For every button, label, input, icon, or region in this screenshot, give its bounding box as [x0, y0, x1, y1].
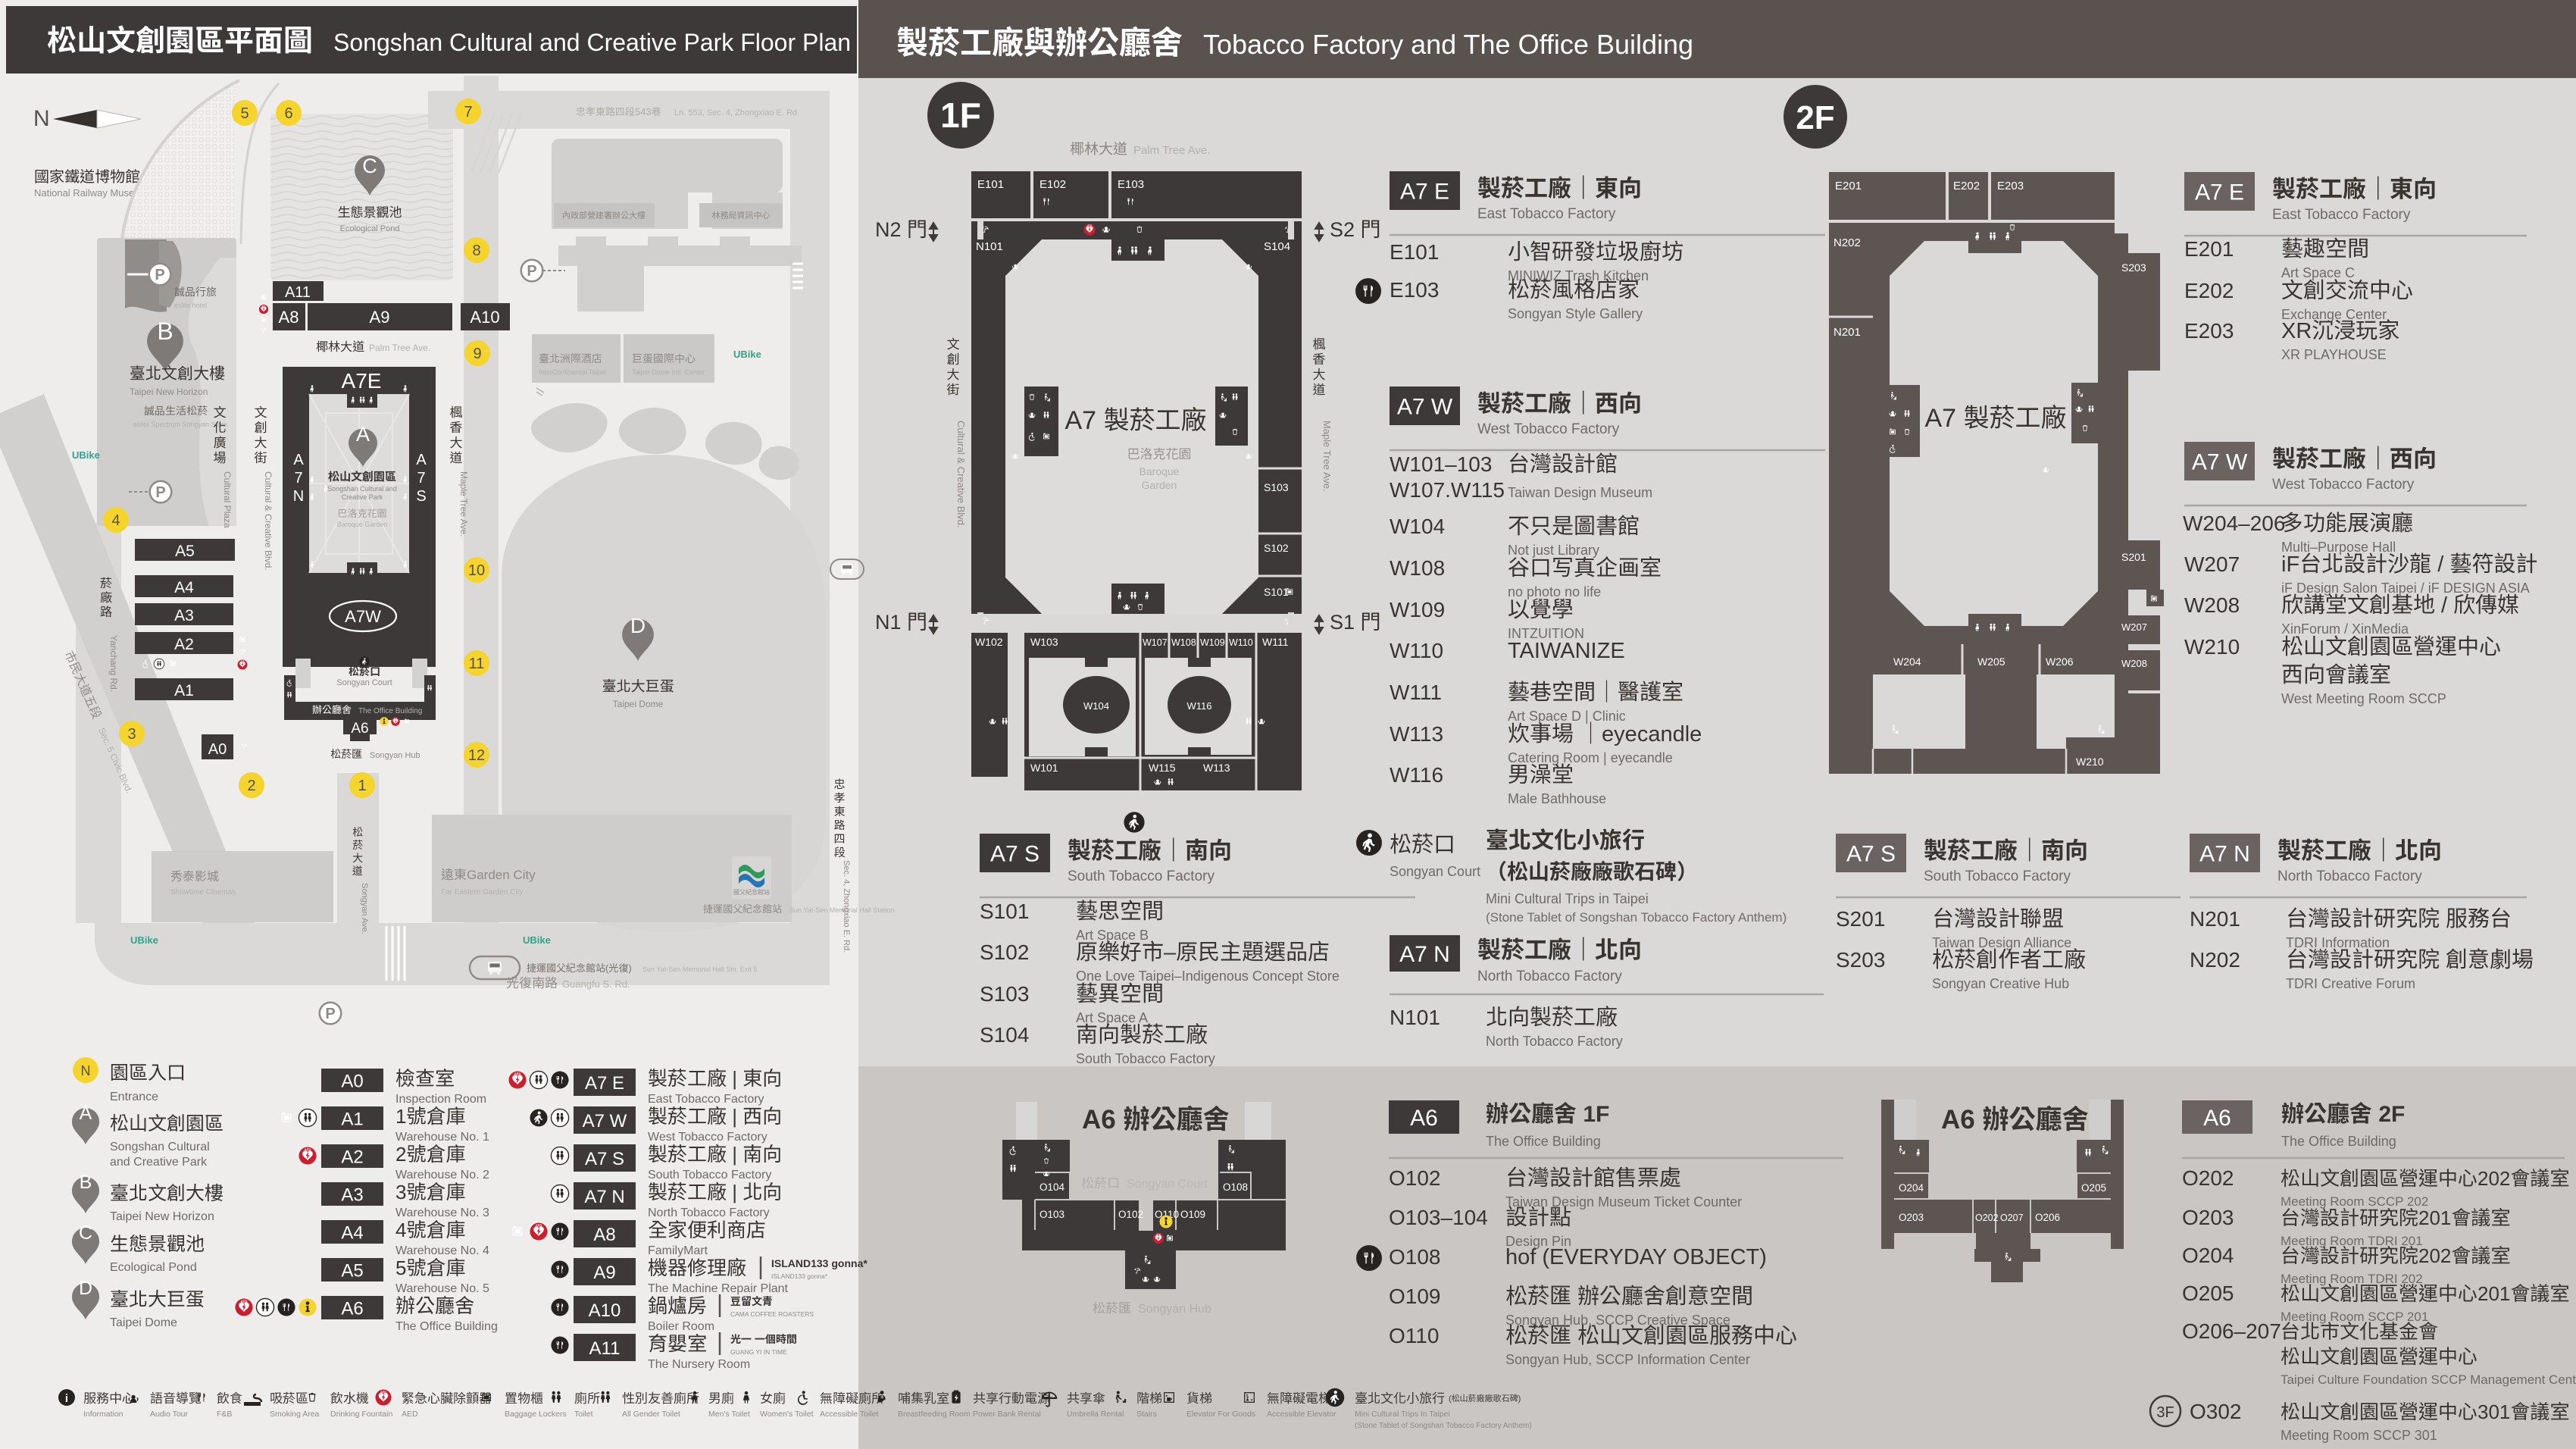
svg-text:E103: E103 [1390, 274, 1439, 304]
svg-text:2: 2 [247, 773, 255, 795]
svg-text:Ecological Pond: Ecological Pond [110, 1257, 197, 1275]
svg-text:Taipei New Horizon: Taipei New Horizon [110, 1206, 214, 1224]
svg-text:(松山菸廠廠歌石碑): (松山菸廠廠歌石碑) [1449, 1392, 1521, 1404]
svg-text:場: 場 [214, 447, 227, 466]
svg-text:O206: O206 [2035, 1209, 2060, 1224]
svg-text:A3: A3 [174, 603, 194, 626]
svg-text:3F: 3F [2156, 1400, 2174, 1422]
svg-text:Information: Information [83, 1408, 123, 1419]
svg-text:UBike: UBike [523, 932, 551, 947]
svg-text:Songyan Hub, SCCP Information: Songyan Hub, SCCP Information Center [1505, 1349, 1750, 1369]
svg-text:松菸匯: 松菸匯 [330, 746, 362, 762]
svg-text:炊事場 ｜eyecandle: 炊事場 ｜eyecandle [1508, 716, 1702, 748]
svg-text:道: 道 [352, 863, 363, 878]
svg-text:Songyan Court: Songyan Court [1127, 1173, 1208, 1191]
svg-text:Smoking Area: Smoking Area [270, 1408, 320, 1419]
svg-text:臺北大巨蛋: 臺北大巨蛋 [110, 1285, 205, 1312]
svg-text:椰林大道: 椰林大道 [1070, 138, 1127, 158]
svg-text:女廁: 女廁 [760, 1388, 786, 1407]
svg-text:10: 10 [468, 558, 485, 580]
svg-text:UBike: UBike [72, 447, 100, 462]
svg-text:W210: W210 [2184, 631, 2240, 661]
svg-text:不只是圖書館: 不只是圖書館 [1508, 509, 1640, 540]
svg-text:O204: O204 [2182, 1239, 2234, 1269]
svg-text:O104: O104 [1039, 1178, 1065, 1194]
svg-text:i: i [65, 1390, 68, 1406]
svg-text:製菸工廠｜北向: 製菸工廠｜北向 [1477, 931, 1642, 965]
svg-text:男澡堂: 男澡堂 [1508, 757, 1574, 789]
svg-text:生態景觀池: 生態景觀池 [338, 202, 402, 221]
svg-text:Taipei Culture Foundation SCCP: Taipei Culture Foundation SCCP Managemen… [2281, 1369, 2576, 1388]
svg-text:Breastfeeding Room: Breastfeeding Room [898, 1408, 971, 1419]
svg-text:台灣設計研究院 創意劇場: 台灣設計研究院 創意劇場 [2286, 942, 2534, 974]
svg-text:A: A [80, 1098, 92, 1125]
svg-text:松菸創作者工廠: 松菸創作者工廠 [1932, 942, 2086, 974]
svg-text:吸菸區: 吸菸區 [270, 1388, 308, 1407]
svg-text:Baroque Garden: Baroque Garden [337, 519, 388, 529]
svg-text:Baroque: Baroque [1140, 464, 1180, 479]
svg-text:台灣設計研究院201會議室: 台灣設計研究院201會議室 [2281, 1203, 2510, 1231]
svg-text:檢查室: 檢查室 [395, 1063, 455, 1091]
svg-text:S: S [416, 484, 426, 505]
svg-text:藝趣空間: 藝趣空間 [2281, 231, 2369, 263]
svg-text:iF台北設計沙龍 / 藝符設計: iF台北設計沙龍 / 藝符設計 [2281, 546, 2537, 578]
svg-text:O202: O202 [2182, 1162, 2234, 1192]
svg-text:段: 段 [833, 844, 845, 860]
svg-text:F&B: F&B [217, 1408, 232, 1419]
svg-text:A8: A8 [593, 1219, 615, 1246]
svg-text:辦公廳舍: 辦公廳舍 [395, 1291, 474, 1319]
svg-text:S101: S101 [1264, 584, 1289, 599]
svg-text:國家鐵道博物館: 國家鐵道博物館 [34, 164, 140, 186]
svg-text:台灣設計研究院202會議室: 台灣設計研究院202會議室 [2281, 1241, 2510, 1269]
svg-text:豆留文青: 豆留文青 [730, 1294, 773, 1309]
svg-text:W113: W113 [1203, 760, 1230, 775]
svg-text:A9: A9 [593, 1257, 615, 1284]
svg-text:A11: A11 [285, 280, 311, 302]
svg-text:5: 5 [240, 101, 249, 123]
svg-text:林務局資訊中心: 林務局資訊中心 [711, 209, 771, 221]
svg-text:小智研發垃圾廚坊: 小智研發垃圾廚坊 [1508, 234, 1683, 266]
svg-text:S2 門: S2 門 [1330, 213, 1381, 243]
svg-text:A2: A2 [174, 632, 194, 655]
svg-text:Sun Yat-Sen Memorial Hall Stn.: Sun Yat-Sen Memorial Hall Stn. Exit 5 [642, 964, 757, 974]
svg-text:鍋爐房: 鍋爐房 [648, 1291, 707, 1319]
svg-text:A7 S: A7 S [585, 1144, 624, 1170]
svg-text:B: B [157, 312, 173, 347]
svg-text:無障礙電梯: 無障礙電梯 [1267, 1388, 1331, 1407]
svg-text:松菸口: 松菸口 [1390, 827, 1455, 859]
svg-text:Ln. 553, Sec. 4, Zhongxiao E.: Ln. 553, Sec. 4, Zhongxiao E. Rd. [674, 106, 799, 118]
svg-text:Accessible Elevator: Accessible Elevator [1267, 1408, 1336, 1419]
svg-text:原樂好市–原民主題選品店: 原樂好市–原民主題選品店 [1076, 934, 1330, 966]
svg-text:W208: W208 [2121, 656, 2147, 670]
svg-text:O203: O203 [1899, 1209, 1924, 1224]
svg-text:欣講堂文創基地 / 欣傳媒: 欣講堂文創基地 / 欣傳媒 [2281, 587, 2519, 619]
svg-text:松山文創園區: 松山文創園區 [328, 468, 396, 484]
svg-text:廁所: 廁所 [574, 1388, 600, 1407]
svg-text:A9: A9 [370, 304, 390, 328]
svg-text:Cultural & Creative Blvd.: Cultural & Creative Blvd. [262, 471, 275, 571]
svg-text:Taipei Dome: Taipei Dome [613, 697, 664, 710]
svg-text:A10: A10 [589, 1295, 621, 1322]
svg-text:O205: O205 [2182, 1277, 2234, 1307]
svg-text:置物櫃: 置物櫃 [505, 1388, 543, 1407]
svg-text:北向製菸工廠: 北向製菸工廠 [1486, 1000, 1618, 1031]
svg-text:西向會議室: 西向會議室 [2281, 657, 2391, 689]
svg-text:A7 S: A7 S [990, 835, 1039, 868]
svg-text:辦公廳舍 2F: 辦公廳舍 2F [2281, 1095, 2405, 1128]
svg-text:O108: O108 [1389, 1241, 1441, 1271]
svg-text:台灣設計研究院 服務台: 台灣設計研究院 服務台 [2286, 901, 2512, 933]
svg-text:W111: W111 [1262, 634, 1289, 649]
svg-text:Songyan Style Gallery: Songyan Style Gallery [1508, 303, 1643, 323]
svg-text:飲水機: 飲水機 [330, 1388, 369, 1407]
svg-text:North Tobacco Factory: North Tobacco Factory [1486, 1031, 1623, 1050]
svg-text:The Office Building: The Office Building [1486, 1131, 1601, 1150]
svg-text:A4: A4 [341, 1218, 363, 1244]
svg-text:Mini Cultural Trips In Taipei: Mini Cultural Trips In Taipei [1355, 1408, 1450, 1419]
svg-text:Songshan Cultural and Creative: Songshan Cultural and Creative Park Floo… [333, 23, 851, 58]
svg-text:飲食: 飲食 [217, 1388, 242, 1407]
svg-text:The Office Building: The Office Building [395, 1316, 498, 1334]
svg-text:語音導覽: 語音導覽 [150, 1388, 202, 1407]
svg-text:East Tobacco Factory: East Tobacco Factory [1477, 202, 1616, 223]
svg-text:椰林大道: 椰林大道 [316, 336, 364, 355]
svg-text:Cultural & Creative Blvd.: Cultural & Creative Blvd. [955, 421, 969, 528]
svg-text:Palm Tree Ave.: Palm Tree Ave. [369, 341, 430, 354]
svg-text:(Stone Tablet of Songshan Toba: (Stone Tablet of Songshan Tobacco Factor… [1486, 906, 1787, 925]
svg-text:誠品生活松菸: 誠品生活松菸 [144, 403, 208, 418]
svg-text:hof (EVERYDAY OBJECT): hof (EVERYDAY OBJECT) [1505, 1239, 1767, 1271]
svg-text:臺北文創大樓: 臺北文創大樓 [110, 1178, 224, 1206]
svg-text:製菸工廠｜南向: 製菸工廠｜南向 [1924, 831, 2088, 865]
svg-text:S103: S103 [1264, 480, 1289, 495]
svg-text:國父紀念館站: 國父紀念館站 [733, 888, 771, 897]
svg-text:E202: E202 [1953, 177, 1980, 193]
svg-text:O302: O302 [2190, 1395, 2242, 1426]
svg-text:O204: O204 [1899, 1179, 1924, 1194]
svg-text:誠品行旅: 誠品行旅 [174, 284, 217, 299]
svg-text:共享行動電源: 共享行動電源 [973, 1388, 1050, 1407]
svg-text:Garden: Garden [1142, 477, 1177, 493]
svg-text:臺北洲際酒店: 臺北洲際酒店 [539, 351, 602, 366]
svg-text:E203: E203 [2184, 315, 2234, 345]
svg-text:共享傘: 共享傘 [1067, 1388, 1105, 1407]
svg-text:松菸匯: 松菸匯 [1093, 1297, 1131, 1316]
svg-text:Elevator For Goods: Elevator For Goods [1186, 1408, 1255, 1419]
svg-text:男廁: 男廁 [708, 1388, 734, 1407]
svg-text:W113: W113 [1390, 718, 1443, 748]
svg-text:A0: A0 [341, 1066, 363, 1093]
svg-text:巴洛克花園: 巴洛克花園 [1127, 443, 1192, 462]
svg-text:育嬰室: 育嬰室 [648, 1329, 707, 1357]
svg-text:Palm Tree Ave.: Palm Tree Ave. [1133, 142, 1210, 158]
svg-text:松山文創園區平面圖: 松山文創園區平面圖 [47, 17, 313, 60]
svg-text:台灣設計館: 台灣設計館 [1508, 446, 1618, 478]
svg-text:松山文創園區營運中心202會議室: 松山文創園區營運中心202會議室 [2281, 1163, 2569, 1191]
svg-text:W102: W102 [975, 634, 1003, 649]
svg-text:光一 一個時間: 光一 一個時間 [730, 1332, 797, 1347]
svg-text:無障礙廁所: 無障礙廁所 [820, 1388, 884, 1407]
svg-text:A7 W: A7 W [2192, 443, 2248, 477]
svg-text:Taipei Dome Intl. Center: Taipei Dome Intl. Center [632, 367, 705, 377]
svg-text:Drinking Fountain: Drinking Fountain [330, 1408, 392, 1419]
svg-text:臺北大巨蛋: 臺北大巨蛋 [602, 675, 674, 696]
svg-text:Songyan Hub: Songyan Hub [1138, 1298, 1211, 1316]
svg-text:O108: O108 [1223, 1178, 1248, 1194]
svg-text:East Tobacco Factory: East Tobacco Factory [2272, 203, 2411, 224]
svg-text:Entrance: Entrance [110, 1086, 158, 1104]
svg-text:Creative Park: Creative Park [342, 492, 383, 502]
svg-text:O102: O102 [1389, 1162, 1441, 1192]
svg-text:製菸工廠 | 南向: 製菸工廠 | 南向 [648, 1139, 782, 1167]
svg-text:N: N [33, 99, 50, 133]
svg-text:製菸工廠 | 北向: 製菸工廠 | 北向 [648, 1177, 782, 1205]
svg-text:藝思空間: 藝思空間 [1076, 893, 1164, 925]
svg-text:eslite hotel: eslite hotel [174, 300, 207, 310]
svg-text:W104: W104 [1083, 698, 1109, 712]
svg-text:A6: A6 [1410, 1099, 1438, 1132]
svg-text:1號倉庫: 1號倉庫 [395, 1101, 465, 1129]
svg-text:West Tobacco Factory: West Tobacco Factory [1477, 418, 1620, 438]
svg-text:Umbrella Rental: Umbrella Rental [1067, 1408, 1124, 1419]
svg-text:臺北文創大樓: 臺北文創大樓 [130, 361, 225, 384]
svg-text:臺北文化小旅行: 臺北文化小旅行 [1355, 1388, 1445, 1407]
svg-text:Audio Tour: Audio Tour [150, 1408, 189, 1419]
svg-text:A7 N: A7 N [584, 1181, 624, 1208]
svg-text:街: 街 [255, 447, 267, 466]
svg-text:Songyan Creative Hub: Songyan Creative Hub [1932, 973, 2069, 993]
svg-text:A0: A0 [208, 737, 227, 759]
svg-text:S1 門: S1 門 [1330, 606, 1381, 635]
svg-text:North Tobacco Factory: North Tobacco Factory [1477, 965, 1622, 985]
svg-text:11: 11 [469, 651, 485, 673]
svg-text:3號倉庫: 3號倉庫 [395, 1177, 465, 1205]
svg-text:W207: W207 [2121, 619, 2147, 634]
svg-text:A11: A11 [589, 1333, 621, 1360]
svg-text:Cultural Plaza: Cultural Plaza [221, 471, 234, 528]
svg-text:O102: O102 [1118, 1206, 1143, 1221]
svg-text:Stairs: Stairs [1136, 1408, 1157, 1419]
svg-text:E201: E201 [1835, 177, 1862, 193]
svg-text:N101: N101 [976, 238, 1003, 254]
svg-text:A7 N: A7 N [1399, 935, 1450, 969]
svg-text:台灣設計館售票處: 台灣設計館售票處 [1505, 1160, 1681, 1192]
svg-text:製菸工廠｜南向: 製菸工廠｜南向 [1068, 831, 1232, 865]
svg-text:W107.W115: W107.W115 [1390, 474, 1505, 504]
svg-text:S201: S201 [2121, 549, 2146, 565]
svg-text:E203: E203 [1997, 177, 2024, 193]
svg-text:W205: W205 [1977, 654, 2005, 669]
svg-text:貨梯: 貨梯 [1186, 1388, 1212, 1407]
svg-text:N: N [81, 1060, 91, 1080]
svg-text:O103–104: O103–104 [1389, 1201, 1488, 1231]
svg-text:製菸工廠 | 西向: 製菸工廠 | 西向 [648, 1101, 782, 1129]
svg-text:O207: O207 [2000, 1210, 2024, 1224]
svg-text:A7 E: A7 E [2195, 174, 2244, 207]
svg-text:AED: AED [402, 1408, 418, 1419]
svg-text:忠孝東路四段543巷: 忠孝東路四段543巷 [576, 104, 661, 118]
svg-text:N101: N101 [1390, 1001, 1440, 1031]
svg-text:W107: W107 [1143, 634, 1168, 649]
svg-text:1: 1 [358, 773, 366, 795]
svg-text:2F: 2F [1796, 90, 1834, 139]
svg-text:以覺學: 以覺學 [1508, 592, 1574, 624]
svg-text:E101: E101 [1390, 236, 1439, 266]
svg-text:O203: O203 [2182, 1201, 2234, 1231]
svg-text:A8: A8 [279, 304, 299, 328]
svg-text:All Gender Toilet: All Gender Toilet [622, 1408, 680, 1419]
svg-text:松山文創園區營運中心201會議室: 松山文創園區營運中心201會議室 [2281, 1278, 2569, 1307]
svg-text:藝異空間: 藝異空間 [1076, 976, 1164, 1008]
svg-text:Ecological Pond: Ecological Pond [340, 222, 400, 234]
svg-text:TAIWANIZE: TAIWANIZE [1508, 633, 1625, 665]
svg-text:服務中心: 服務中心 [83, 1388, 135, 1407]
svg-text:W116: W116 [1390, 759, 1443, 789]
svg-text:W115: W115 [1149, 760, 1176, 775]
svg-text:W108: W108 [1171, 634, 1196, 649]
svg-text:W109: W109 [1200, 634, 1225, 649]
svg-text:A7 S: A7 S [1846, 835, 1896, 868]
svg-text:3: 3 [127, 721, 136, 743]
svg-text:UBike: UBike [733, 346, 761, 361]
svg-text:Songyan Hub: Songyan Hub [370, 749, 420, 761]
svg-text:South Tobacco Factory: South Tobacco Factory [1924, 865, 2071, 885]
svg-text:南向製菸工廠: 南向製菸工廠 [1076, 1017, 1208, 1049]
svg-text:9: 9 [473, 341, 481, 363]
svg-text:W108: W108 [1390, 552, 1445, 582]
svg-text:松山文創園區營運中心: 松山文創園區營運中心 [2281, 1341, 2478, 1369]
svg-text:機器修理廠: 機器修理廠 [648, 1253, 746, 1281]
svg-text:Male Bathhouse: Male Bathhouse [1508, 788, 1606, 808]
svg-text:A10: A10 [470, 304, 499, 328]
svg-text:Maple Tree Ave.: Maple Tree Ave. [458, 471, 470, 537]
svg-text:A7 製菸工廠: A7 製菸工廠 [1064, 399, 1206, 437]
svg-text:A6: A6 [351, 717, 368, 737]
svg-text:E102: E102 [1039, 176, 1066, 192]
svg-text:台北市文化基金會: 台北市文化基金會 [2281, 1316, 2438, 1344]
svg-text:哺集乳室: 哺集乳室 [898, 1388, 949, 1407]
svg-text:S201: S201 [1836, 903, 1885, 933]
svg-text:Mini Cultural Trips in Taipei: Mini Cultural Trips in Taipei [1486, 888, 1649, 908]
svg-text:Power Bank Rental: Power Bank Rental [973, 1408, 1041, 1419]
svg-text:街: 街 [947, 379, 960, 398]
svg-text:TDRI Creative Forum: TDRI Creative Forum [2286, 973, 2415, 993]
svg-text:N201: N201 [2190, 903, 2240, 933]
svg-text:園區入口: 園區入口 [110, 1058, 186, 1085]
svg-text:W208: W208 [2184, 589, 2240, 619]
svg-text:C: C [362, 149, 377, 179]
svg-text:A5: A5 [341, 1256, 363, 1282]
svg-text:巨蛋國際中心: 巨蛋國際中心 [632, 351, 696, 366]
svg-text:松山文創園區營運中心: 松山文創園區營運中心 [2281, 629, 2501, 661]
svg-text:N202: N202 [2190, 944, 2240, 974]
svg-text:秀泰影城: 秀泰影城 [170, 866, 219, 884]
svg-text:InterContinental Taipei: InterContinental Taipei [539, 367, 606, 377]
svg-text:E103: E103 [1118, 176, 1144, 192]
svg-text:A6: A6 [2203, 1099, 2231, 1132]
svg-text:W109: W109 [1390, 593, 1445, 624]
svg-text:A6 辦公廳舍: A6 辦公廳舍 [1082, 1098, 1229, 1137]
svg-text:A6 辦公廳舍: A6 辦公廳舍 [1941, 1098, 2088, 1137]
svg-text:N202: N202 [1834, 234, 1861, 250]
svg-text:Toilet: Toilet [574, 1408, 593, 1419]
svg-text:A7W: A7W [345, 603, 381, 627]
svg-text:(Stone Tablet of Songshan Toba: (Stone Tablet of Songshan Tobacco Factor… [1355, 1419, 1532, 1430]
svg-text:松山文創園區: 松山文創園區 [110, 1109, 224, 1136]
svg-text:W104: W104 [1390, 510, 1445, 540]
svg-text:A4: A4 [174, 575, 194, 598]
svg-text:North Tobacco Factory: North Tobacco Factory [2277, 865, 2422, 885]
svg-text:松菸匯 松山文創園區服務中心: 松菸匯 松山文創園區服務中心 [1505, 1318, 1797, 1350]
svg-text:捷運國父紀念館站: 捷運國父紀念館站 [703, 901, 782, 915]
svg-text:A7 E: A7 E [1400, 173, 1449, 206]
svg-text:A7E: A7E [342, 365, 382, 395]
svg-text:A6: A6 [341, 1294, 363, 1320]
svg-text:7: 7 [464, 99, 472, 121]
svg-text:W206: W206 [2046, 654, 2074, 669]
svg-text:辦公廳舍: 辦公廳舍 [312, 702, 352, 716]
svg-text:A: A [356, 418, 370, 447]
svg-text:全家便利商店: 全家便利商店 [648, 1215, 766, 1243]
svg-text:South Tobacco Factory: South Tobacco Factory [1068, 865, 1215, 885]
svg-text:West Meeting Room SCCP: West Meeting Room SCCP [2281, 688, 2446, 708]
svg-text:W110: W110 [1390, 634, 1443, 665]
svg-text:5號倉庫: 5號倉庫 [395, 1253, 465, 1281]
svg-text:松菸匯 辦公廳舍創意空間: 松菸匯 辦公廳舍創意空間 [1505, 1278, 1753, 1310]
svg-text:6: 6 [284, 101, 292, 123]
svg-text:4: 4 [111, 508, 120, 530]
svg-text:光復南路: 光復南路 [506, 972, 558, 991]
svg-text:S104: S104 [980, 1019, 1029, 1049]
svg-text:Maple Tree Ave.: Maple Tree Ave. [1321, 421, 1335, 492]
svg-text:內政部營建署辦公大樓: 內政部營建署辦公大樓 [562, 209, 646, 221]
svg-text:道: 道 [1313, 379, 1326, 398]
svg-text:S203: S203 [1836, 944, 1885, 974]
svg-text:S103: S103 [980, 978, 1029, 1008]
svg-text:Songyan Court: Songyan Court [1390, 861, 1480, 881]
svg-text:W204: W204 [1893, 654, 1921, 669]
svg-text:S104: S104 [1264, 238, 1290, 254]
svg-text:O109: O109 [1389, 1280, 1441, 1310]
svg-text:O202: O202 [1975, 1210, 1999, 1224]
svg-text:Showtime Cinemas: Showtime Cinemas [170, 885, 236, 897]
svg-text:台灣設計聯盟: 台灣設計聯盟 [1932, 901, 2064, 933]
svg-text:S101: S101 [980, 895, 1029, 925]
svg-text:Tobacco Factory and The Office: Tobacco Factory and The Office Building [1203, 23, 1693, 62]
svg-text:道: 道 [450, 447, 463, 466]
svg-text:The Office Building: The Office Building [358, 704, 422, 715]
svg-text:O205: O205 [2081, 1179, 2106, 1194]
svg-text:W207: W207 [2184, 548, 2240, 578]
svg-text:Accessible Toilet: Accessible Toilet [820, 1408, 879, 1419]
svg-text:Songyan Ave.: Songyan Ave. [359, 883, 371, 934]
svg-text:製菸工廠 | 東向: 製菸工廠 | 東向 [648, 1063, 782, 1091]
svg-text:製菸工廠｜東向: 製菸工廠｜東向 [1477, 169, 1642, 203]
svg-text:Taipei Dome: Taipei Dome [110, 1312, 177, 1330]
svg-text:A1: A1 [341, 1104, 363, 1131]
svg-text:Guangfu S. Rd.: Guangfu S. Rd. [562, 976, 630, 991]
svg-text:路: 路 [100, 602, 112, 620]
svg-text:2號倉庫: 2號倉庫 [395, 1139, 465, 1167]
svg-text:松山文創園區營運中心301會議室: 松山文創園區營運中心301會議室 [2281, 1397, 2569, 1425]
svg-text:製菸工廠｜西向: 製菸工廠｜西向 [1477, 384, 1642, 418]
svg-text:遠東Garden City: 遠東Garden City [441, 864, 536, 883]
svg-text:XR PLAYHOUSE: XR PLAYHOUSE [2281, 344, 2387, 364]
svg-text:A3: A3 [341, 1180, 363, 1206]
svg-text:A7 N: A7 N [2199, 835, 2250, 868]
